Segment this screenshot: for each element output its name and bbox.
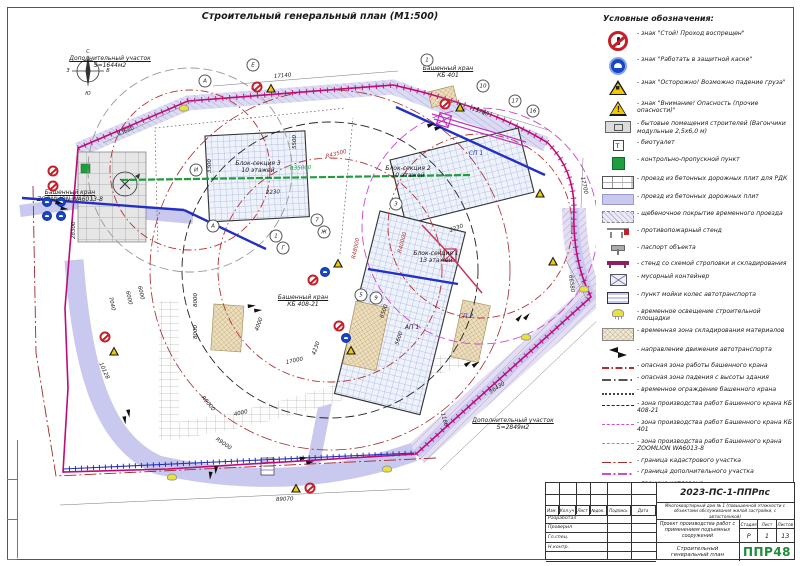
legend-item: - знак "Осторожно! Возможно падение груз… xyxy=(599,79,793,95)
dimension-label: 66580 xyxy=(567,275,575,293)
line-zone-zoomlion-icon xyxy=(599,439,637,444)
prohibition-sign-icon xyxy=(308,275,319,286)
dimension-label: 7040 xyxy=(107,296,116,311)
axis-bubble: 5 xyxy=(355,289,368,302)
legend-item-text: - биотуалет xyxy=(637,139,675,146)
titleblock-role-row xyxy=(546,552,656,562)
prohibition-sign-icon xyxy=(48,166,59,177)
legend-item: - направление движения автотранспорта xyxy=(599,346,793,358)
titleblock-roles: РазработалПроверилГл.спец.Н.контр. xyxy=(546,514,656,562)
mandatory-sign-icon xyxy=(42,211,52,221)
titleblock-role-row: Проверил xyxy=(546,524,656,534)
legend-list: - знак "Стой! Проход воспрещен"- знак "Р… xyxy=(599,30,793,520)
dimension-label: 2230 xyxy=(449,223,464,233)
legend-item-text: - проезд из бетонных дорожных плит для Р… xyxy=(637,175,787,182)
dimension-label: R48000 xyxy=(351,238,361,260)
legend-item: - стенд со схемой строповки и складирова… xyxy=(599,260,793,269)
legend-item-text: - паспорт объекта xyxy=(637,244,696,251)
titleblock-role-row: Разработал xyxy=(546,514,656,524)
fire-stand-icon xyxy=(599,228,637,239)
axis-bubble: Е xyxy=(247,59,260,72)
plan-label: Блок-секция 210 этажей xyxy=(385,166,430,180)
passport-icon xyxy=(599,245,637,255)
legend-item: - граница дополнительного участка xyxy=(599,468,793,475)
plan-label: СП 1 xyxy=(469,151,483,158)
line-cadastre-icon xyxy=(599,458,637,464)
axis-bubble: 10 xyxy=(477,80,490,93)
dimension-label: 8000 xyxy=(193,293,199,307)
dimension-label: 1180 xyxy=(439,412,448,427)
legend-item-text: - опасная зона падения с высоты здания xyxy=(637,374,769,381)
title-block: Изм.Кол.учЛист№док.ПодписьДата Разработа… xyxy=(545,482,795,560)
dimension-label: 3300 xyxy=(207,159,213,173)
legend-item-text: - временная зона складирования материало… xyxy=(637,327,784,334)
axis-bubble: 1 xyxy=(270,230,283,243)
legend-panel: Условные обозначения: - знак "Стой! Прох… xyxy=(599,14,793,525)
legend-item: - противопожарный стенд xyxy=(599,227,793,239)
axis-bubble: Ж xyxy=(318,226,331,239)
legend-item-text: - граница дополнительного участка xyxy=(637,468,754,475)
legend-item-text: - граница кадастрового участка xyxy=(637,457,741,464)
sheet-label: Лист xyxy=(758,520,776,528)
titleblock-role-row: Гл.спец. xyxy=(546,533,656,543)
sign-danger-icon xyxy=(599,101,637,116)
plan-label: Башенный кранКБ 408-21 xyxy=(278,295,328,309)
legend-item-text: - пункт мойки колес автотранспорта xyxy=(637,291,756,298)
plan-label: Блок-секция 113 этажей xyxy=(413,251,458,265)
mandatory-sign-icon xyxy=(56,211,66,221)
prohibition-sign-icon xyxy=(48,181,59,192)
project-name: Многоквартирный дом № 1 (повышенной этаж… xyxy=(656,503,794,520)
axis-bubble: А xyxy=(199,75,212,88)
plan-label: СП 2 xyxy=(459,314,473,321)
plan-label: З xyxy=(66,69,69,75)
sheets-value: 13 xyxy=(777,529,794,542)
legend-item: - зона производства работ Башенного кран… xyxy=(599,419,793,433)
legend-item: - граница кадастрового участка xyxy=(599,457,793,464)
plan-label: Блок-секция 310 этажей xyxy=(235,161,280,175)
traffic-direction-arrows xyxy=(299,454,316,465)
axis-bubble: А xyxy=(207,220,220,233)
legend-item-text: - зона производства работ Башенного кран… xyxy=(637,419,793,433)
axis-bubble: Г xyxy=(277,242,290,255)
legend-item: - знак "Стой! Проход воспрещен" xyxy=(599,30,793,51)
prohibition-sign-icon xyxy=(334,321,345,332)
legend-item: - зона производства работ Башенного кран… xyxy=(599,400,793,414)
dimension-label: 6000 xyxy=(136,285,145,300)
legend-item-text: - временное освещение строительной площа… xyxy=(637,308,793,322)
dimension-label: 8000 xyxy=(193,325,199,339)
legend-item-text: - щебеночное покрытие временного проезда xyxy=(637,210,783,217)
dimension-label: 17140 xyxy=(274,72,292,80)
dimension-label: 4000 xyxy=(254,317,264,332)
lamp-icon xyxy=(179,105,189,112)
warning-sign-icon xyxy=(266,84,276,93)
legend-item: - временная зона складирования материало… xyxy=(599,327,793,341)
dimension-label: 4230 xyxy=(311,341,321,356)
dimension-label: 28300 xyxy=(71,222,77,240)
traffic-direction-arrows xyxy=(515,307,532,325)
prohibition-sign-icon xyxy=(440,99,451,110)
sign-helmet-icon xyxy=(599,57,637,75)
plan-label: Дополнительный участокS=1644м2 xyxy=(69,56,151,70)
dimension-label: 43660 xyxy=(117,125,135,137)
traffic-direction-arrows xyxy=(427,119,445,132)
legend-item-text: - временное ограждение башенного крана xyxy=(637,386,776,393)
dimension-label: R43500 xyxy=(325,149,347,160)
legend-item-text: - противопожарный стенд xyxy=(637,227,722,234)
road-gravel-icon xyxy=(599,211,637,223)
legend-item-text: - бытовые помещения строителей (Вагончик… xyxy=(637,120,793,134)
frame-stamp-column xyxy=(7,440,18,558)
mandatory-sign-icon xyxy=(320,267,330,277)
warning-sign-icon xyxy=(535,189,545,198)
drawing-page: Строительный генеральный план (М1:500) xyxy=(0,0,800,566)
legend-item-text: - зона производства работ Башенного кран… xyxy=(637,400,793,414)
legend-item-text: - мусорный контейнер xyxy=(637,273,709,280)
legend-item-text: - знак "Работать в защитной каске" xyxy=(637,56,752,63)
traffic-direction-arrows xyxy=(248,303,265,313)
warning-sign-icon xyxy=(109,347,119,356)
plan-label: Ю xyxy=(85,92,90,98)
axis-bubble: И xyxy=(190,164,203,177)
sheet-value: 1 xyxy=(758,529,776,542)
legend-title: Условные обозначения: xyxy=(603,14,793,23)
plan-label: В xyxy=(106,69,109,75)
axis-bubble: 7 xyxy=(311,214,324,227)
warning-sign-icon xyxy=(455,103,465,112)
legend-item: - проезд из бетонных дорожных плит xyxy=(599,193,793,205)
dimension-label: 6500 xyxy=(379,304,389,319)
lamp-icon xyxy=(167,474,177,481)
legend-item: - знак "Работать в защитной каске" xyxy=(599,56,793,75)
dimension-label: 10128 xyxy=(97,362,110,380)
dimension-label: 89070 xyxy=(276,496,294,503)
legend-item: - временное ограждение башенного крана xyxy=(599,386,793,395)
prohibition-sign-icon xyxy=(252,82,263,93)
wc-icon xyxy=(599,140,637,151)
traffic-direction-arrows xyxy=(464,355,482,372)
plan-label: АП 1 xyxy=(405,325,419,332)
storage-icon xyxy=(599,328,637,341)
legend-item: - паспорт объекта xyxy=(599,244,793,255)
sheet-title: Строительный генеральный план xyxy=(656,543,740,561)
lamp-icon xyxy=(521,334,531,341)
lamp-icon xyxy=(382,466,392,473)
legend-item: - биотуалет xyxy=(599,139,793,151)
traffic-direction-arrows xyxy=(54,200,71,211)
legend-item: - проезд из бетонных дорожных плит для Р… xyxy=(599,175,793,189)
road-plates-icon xyxy=(599,194,637,205)
dimension-label: R9000 xyxy=(200,395,216,413)
line-addplot-icon xyxy=(599,469,637,475)
trash-icon xyxy=(599,274,637,286)
line-zone-kb401-icon xyxy=(599,420,637,425)
prohibition-sign-icon xyxy=(305,483,316,494)
sign-load-icon xyxy=(599,80,637,95)
arrows-icon xyxy=(599,347,637,358)
site-plan: Дополнительный участокS=1644м2Дополнител… xyxy=(8,8,596,553)
legend-item: - опасная зона работы башенного крана xyxy=(599,362,793,369)
lamp-icon xyxy=(579,286,589,293)
prohibition-sign-icon xyxy=(100,332,111,343)
axis-bubble: 9 xyxy=(370,292,383,305)
legend-item: - щебеночное покрытие временного проезда xyxy=(599,210,793,223)
dimension-label: 17000 xyxy=(285,356,303,366)
sheets-label: Листов xyxy=(777,520,794,528)
line-danger-crane-icon xyxy=(599,363,637,369)
legend-item: - знак "Внимание! Опасность (прочие опас… xyxy=(599,100,793,116)
legend-item-text: - зона производства работ Башенного кран… xyxy=(637,438,793,452)
legend-item: - временное освещение строительной площа… xyxy=(599,308,793,322)
axis-bubble: 17 xyxy=(509,95,522,108)
title-block-right: 2023-ПС-1-ППРпс Многоквартирный дом № 1 … xyxy=(656,483,794,559)
legend-item: - бытовые помещения строителей (Вагончик… xyxy=(599,120,793,134)
dimension-label: 2230 xyxy=(266,189,280,196)
kpp-icon xyxy=(599,157,637,170)
mandatory-sign-icon xyxy=(341,333,351,343)
road-rdk-icon xyxy=(599,176,637,189)
warning-sign-icon xyxy=(548,257,558,266)
plan-label: Дополнительный участокS=2849м2 xyxy=(472,418,554,432)
legend-item: - мусорный контейнер xyxy=(599,273,793,286)
legend-item: - зона производства работ Башенного кран… xyxy=(599,438,793,452)
line-zone-kb408-icon xyxy=(599,401,637,406)
dimension-label: 56430 xyxy=(488,381,506,396)
axis-bubble: 1 xyxy=(421,54,434,67)
warning-sign-icon xyxy=(333,259,343,268)
title-block-left: Изм.Кол.учЛист№док.ПодписьДата Разработа… xyxy=(546,483,657,559)
legend-item-text: - опасная зона работы башенного крана xyxy=(637,362,768,369)
dimension-label: 17700 xyxy=(579,176,589,194)
warning-sign-icon xyxy=(346,346,356,355)
plan-label: С xyxy=(86,50,90,56)
wheel-wash-icon xyxy=(599,292,637,304)
legend-item-text: - знак "Стой! Проход воспрещен" xyxy=(637,30,745,37)
work-title: Проект производства работ с применением … xyxy=(656,520,740,542)
warning-sign-icon xyxy=(291,484,301,493)
legend-item: - контрольно-пропускной пункт xyxy=(599,156,793,170)
dimension-label: 6000 xyxy=(124,290,133,305)
plan-label: Башенный кранКБ 401 xyxy=(423,66,473,80)
legend-item: - пункт мойки колес автотранспорта xyxy=(599,291,793,304)
lamp-icon xyxy=(599,309,637,317)
legend-item-text: - контрольно-пропускной пункт xyxy=(637,156,740,163)
legend-item-text: - направление движения автотранспорта xyxy=(637,346,772,353)
stage-label: Стадия xyxy=(740,520,758,528)
line-danger-fall-icon xyxy=(599,375,637,380)
axis-bubble: 16 xyxy=(527,105,540,118)
plan-overlays: Дополнительный участокS=1644м2Дополнител… xyxy=(8,8,596,553)
legend-item-text: - стенд со схемой строповки и складирова… xyxy=(637,260,787,267)
dimension-label: R9000 xyxy=(214,437,232,452)
axis-bubble: 3 xyxy=(390,198,403,211)
stage-value: Р xyxy=(740,529,758,542)
dimension-label: R40000 xyxy=(397,232,408,254)
company-logo: ППР48 xyxy=(740,543,794,561)
line-crane-fence-icon xyxy=(599,387,637,395)
dimension-label: 5600 xyxy=(394,331,404,346)
dimension-label: R35000 xyxy=(290,165,312,172)
dimension-label: 5500 xyxy=(292,135,298,149)
sling-stand-icon xyxy=(599,261,637,269)
titleblock-role-row: Н.контр. xyxy=(546,543,656,553)
dimension-label: 4000 xyxy=(233,409,248,418)
traffic-direction-arrows xyxy=(121,409,133,426)
legend-item-text: - проезд из бетонных дорожных плит xyxy=(637,193,759,200)
dimension-label: 15780 xyxy=(471,106,489,118)
traffic-direction-arrows xyxy=(208,466,218,483)
sign-stop-icon xyxy=(599,31,637,51)
legend-item: - опасная зона падения с высоты здания xyxy=(599,374,793,381)
cabin-icon xyxy=(599,121,637,133)
legend-item-text: - знак "Внимание! Опасность (прочие опас… xyxy=(637,100,793,114)
legend-item-text: - знак "Осторожно! Возможно падение груз… xyxy=(637,79,786,86)
doc-number: 2023-ПС-1-ППРпс xyxy=(656,483,794,503)
mandatory-sign-icon xyxy=(42,197,52,207)
